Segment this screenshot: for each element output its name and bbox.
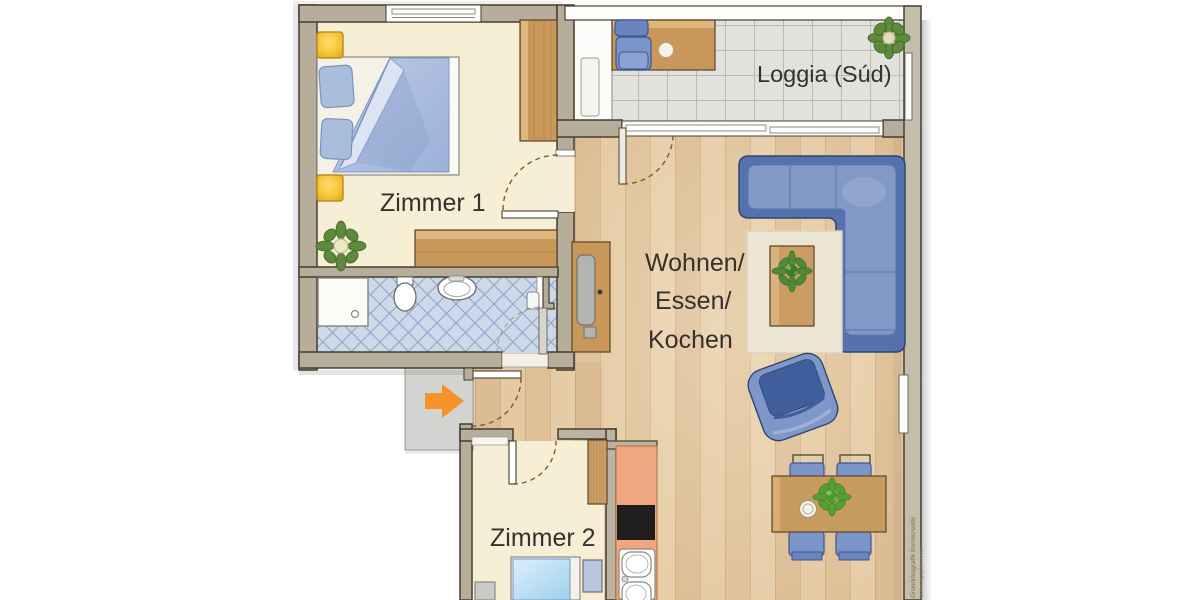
svg-text:wohnungsplan immo: wohnungsplan immo [919, 548, 925, 598]
svg-text:Wohnen/: Wohnen/ [645, 249, 745, 277]
svg-text:Loggia (Súd): Loggia (Súd) [757, 61, 892, 87]
svg-text:Essen/: Essen/ [655, 287, 731, 315]
svg-text:Zimmer 1: Zimmer 1 [380, 189, 486, 217]
svg-text:Kochen: Kochen [648, 326, 733, 354]
svg-text:Grundrissgrafik Immocreativ: Grundrissgrafik Immocreativ [910, 516, 917, 598]
svg-text:Zimmer 2: Zimmer 2 [490, 524, 596, 552]
